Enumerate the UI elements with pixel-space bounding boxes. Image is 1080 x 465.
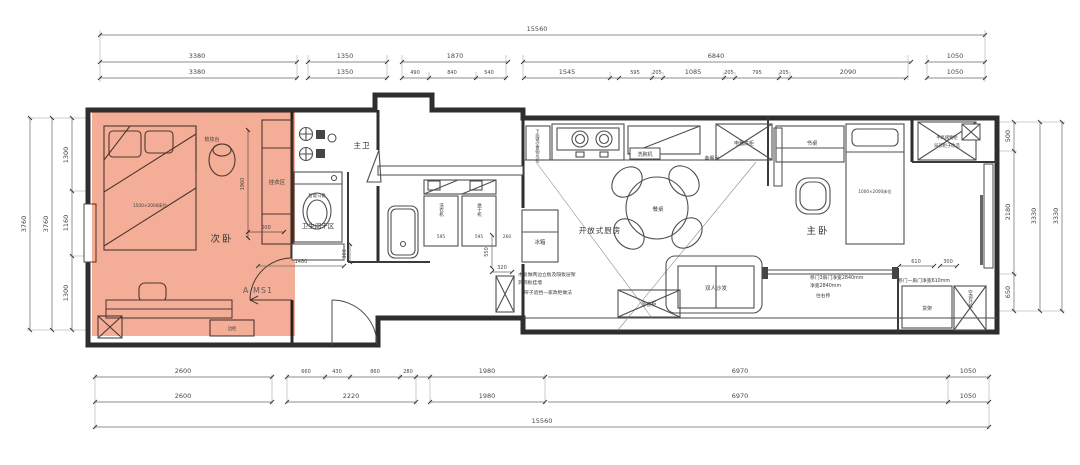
dim: 3760 xyxy=(42,216,50,233)
dim: 840 xyxy=(447,70,457,76)
note-slider-1: 移门3扇门净宽2840mm xyxy=(810,274,864,281)
dim: 650 xyxy=(1004,286,1012,298)
kitchen-divider-hatch xyxy=(774,128,782,186)
dim-1960: 1960 xyxy=(240,178,246,191)
dim-gap: 260 xyxy=(503,234,511,240)
label-ac-unit: 空调外机 xyxy=(968,289,973,310)
entry-door-arc xyxy=(332,300,377,345)
track-post xyxy=(892,267,898,279)
dim: 6970 xyxy=(732,392,749,400)
drain-icon xyxy=(401,242,406,247)
dim-300: 300 xyxy=(342,249,348,259)
room-label-dry-area: 卫生间干区 xyxy=(302,221,335,230)
dim: 490 xyxy=(410,70,420,76)
dim-top-overall: 15560 xyxy=(527,25,548,33)
dim: 795 xyxy=(752,70,762,76)
label-smart-toilet: 智能马桶 xyxy=(308,192,325,199)
dim-1480: 1480 xyxy=(295,259,308,265)
kitchen: 下面镂空置物吊柜 洗碗机 备餐台 电器高柜 冰箱 餐桌 开放式厨房 xyxy=(522,124,772,330)
dim: 6970 xyxy=(732,367,749,375)
label-fridge: 冰箱 xyxy=(534,238,546,246)
pillow xyxy=(852,129,898,146)
dining-chair xyxy=(666,212,708,254)
dim-bottom-overall: 15560 xyxy=(532,417,553,425)
dim: 1980 xyxy=(479,392,496,400)
note-slider-3: 往右移 xyxy=(816,292,831,299)
dim: 660 xyxy=(301,369,311,375)
dim-610: 610 xyxy=(911,259,921,265)
note-half-cabinet-2: 局部柜子改造 xyxy=(934,142,960,149)
dim: 1050 xyxy=(960,392,977,400)
dim: 3380 xyxy=(189,68,206,76)
room-bedroom2-highlight xyxy=(92,112,295,336)
room-master: 书桌 1000×2000床位 主卧 半高储物柜 局部柜子改造 610 300 移… xyxy=(776,122,986,330)
dim: 3760 xyxy=(20,216,28,233)
note-utility-1: 木板做两边立板及隔板层架 xyxy=(518,271,576,278)
dim-300b: 300 xyxy=(943,259,953,265)
label-dryer: 烘干机 xyxy=(477,202,482,218)
label-sofa: 双人沙发 xyxy=(705,284,728,292)
label-bed1-size: 1000×2000床位 xyxy=(858,188,891,195)
dim: 1050 xyxy=(947,52,964,60)
dim: 2600 xyxy=(175,367,192,375)
dim: 1300 xyxy=(62,147,70,164)
dim: 540 xyxy=(484,70,494,76)
dim: 1350 xyxy=(337,52,354,60)
label-dining-table: 餐桌 xyxy=(652,205,664,213)
label-dishwasher: 洗碗机 xyxy=(637,151,652,158)
dim: 1050 xyxy=(947,68,964,76)
faucet-icon xyxy=(332,176,337,181)
dim-washer: 595 xyxy=(437,234,445,240)
track-post xyxy=(762,267,768,279)
dim: 3330 xyxy=(1052,208,1060,225)
laundry-shelf xyxy=(424,180,496,194)
dim: 280 xyxy=(403,369,413,375)
dim: 205 xyxy=(652,70,662,76)
fixture-box xyxy=(316,130,325,139)
marker-a-ms1: A-MS1 xyxy=(243,286,273,295)
dim-chain-right: 500 2180 650 3330 3330 xyxy=(999,120,1065,313)
dim: 205 xyxy=(724,70,734,76)
dim: 2600 xyxy=(175,392,192,400)
dim: 500 xyxy=(1004,130,1012,142)
dim: 2090 xyxy=(840,68,857,76)
fixture-box xyxy=(316,149,325,158)
dim: 860 xyxy=(370,369,380,375)
dim: 1980 xyxy=(479,367,496,375)
vanity xyxy=(294,172,342,242)
dim-chain-top: 15560 3380 1350 1870 6840 1050 3380 1350… xyxy=(98,25,987,82)
label-hanging-area: 挂衣区 xyxy=(269,178,286,186)
desk-chair xyxy=(796,178,830,214)
bathtub xyxy=(388,206,418,258)
label-washer: 洗衣机 xyxy=(439,202,444,218)
floor-plan-canvas: 15560 3380 1350 1870 6840 1050 3380 1350… xyxy=(0,0,1080,465)
label-bed2-size: 1500×2000床位 xyxy=(133,202,168,209)
dim: 1545 xyxy=(559,68,576,76)
dim: 205 xyxy=(779,70,789,76)
label-shelf: 货架 xyxy=(922,305,932,312)
dim: 1050 xyxy=(960,367,977,375)
label-side-cabinet: 边柜 xyxy=(228,325,237,332)
label-dressing-table: 梳妆台 xyxy=(204,136,219,143)
dim: 595 xyxy=(630,70,640,76)
dim-320: 320 xyxy=(497,265,507,271)
dim: 1350 xyxy=(337,68,354,76)
note-utility-3: 帘子遮挡—家政柜做法 xyxy=(524,289,572,296)
note-slider-single: 移门一扇门净宽610mm xyxy=(898,277,950,284)
room-label-kitchen: 开放式厨房 xyxy=(579,225,622,235)
label-prep-counter: 备餐台 xyxy=(704,155,719,162)
dim: 2220 xyxy=(343,392,360,400)
burner-icon xyxy=(596,131,612,147)
dim: 1160 xyxy=(62,215,70,232)
dim: 3380 xyxy=(189,52,206,60)
drain-icon xyxy=(328,134,336,142)
room-label-bedroom2: 次卧 xyxy=(210,233,233,245)
room-label-master: 主卧 xyxy=(806,225,829,237)
dining-chair xyxy=(663,160,705,202)
dim: 6840 xyxy=(708,52,725,60)
dining-chair xyxy=(606,161,648,203)
room-label-master-bath: 主卫 xyxy=(354,140,371,150)
label-upper-cabinet: 下面镂空置物吊柜 xyxy=(536,129,541,164)
bed-master xyxy=(846,124,904,244)
dim-dryer: 595 xyxy=(475,234,483,240)
label-desk: 书桌 xyxy=(806,139,818,147)
bath-cabinet xyxy=(292,244,344,260)
dim-chain-left: 3760 3760 1300 1160 1300 xyxy=(20,116,86,332)
window-corridor-top xyxy=(378,166,523,175)
dim: 430 xyxy=(332,369,342,375)
dim: 1085 xyxy=(685,68,702,76)
fridge-box xyxy=(522,210,558,262)
label-snack-cabinet: 零食柜 xyxy=(641,301,656,308)
dim-600: 600 xyxy=(261,225,271,231)
curtain-right xyxy=(984,164,993,268)
curtain-strip xyxy=(980,195,983,265)
living-area: 双人沙发 零食柜 移门3扇门净宽2840mm 净宽2840mm 往右移 xyxy=(618,256,898,317)
dim: 1870 xyxy=(447,52,464,60)
dim-chain-bottom: 2600 660 430 860 280 1980 6970 1050 2600… xyxy=(93,367,991,429)
dim: 1300 xyxy=(62,285,70,302)
sliding-door-track xyxy=(766,270,898,274)
note-utility-2: 洞洞板挂墙 xyxy=(518,279,542,286)
label-tall-cabinet: 电器高柜 xyxy=(734,140,754,147)
dim: 2180 xyxy=(1004,204,1012,221)
note-half-cabinet-1: 半高储物柜 xyxy=(936,134,958,141)
floor-plan-page: 15560 3380 1350 1870 6840 1050 3380 1350… xyxy=(0,0,1080,465)
note-slider-2: 净宽2840mm xyxy=(810,282,841,289)
dim: 3330 xyxy=(1030,208,1038,225)
dim-550: 550 xyxy=(484,247,490,257)
burner-icon xyxy=(572,131,588,147)
